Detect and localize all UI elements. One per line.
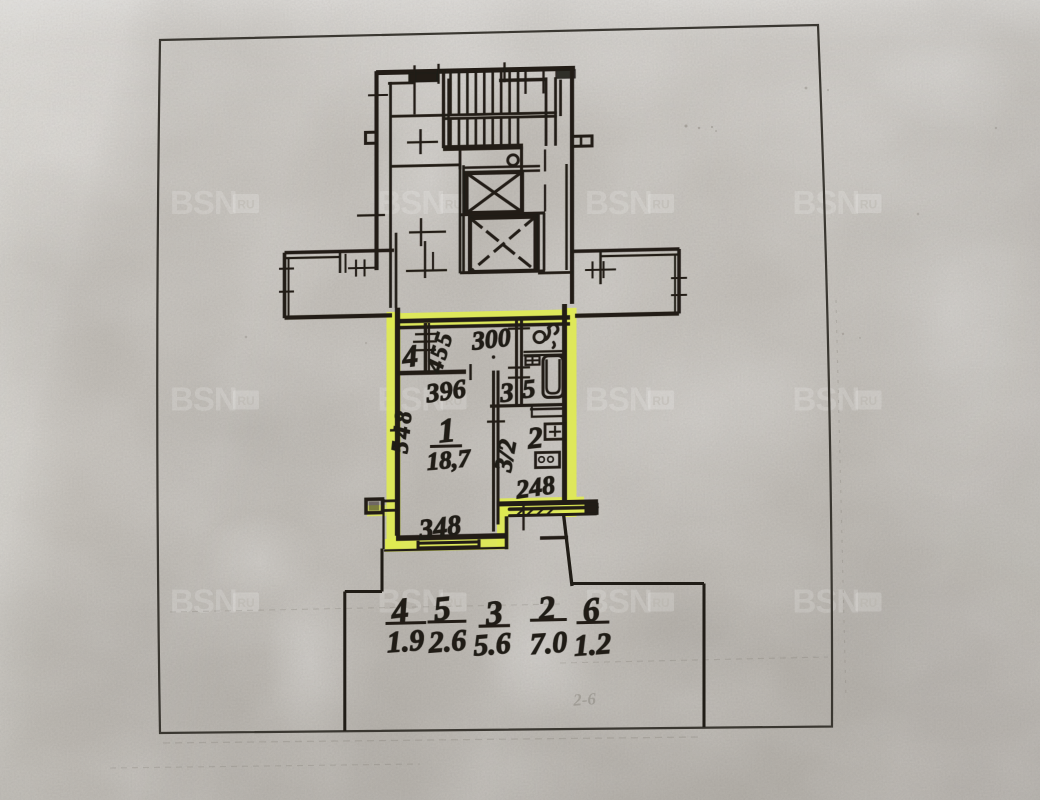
- svg-text:18,7: 18,7: [426, 445, 473, 476]
- svg-text:RU: RU: [652, 198, 669, 212]
- svg-text:5: 5: [521, 374, 536, 404]
- svg-text:248: 248: [513, 470, 556, 504]
- svg-text:2.6: 2.6: [427, 624, 467, 660]
- svg-text:RU: RU: [860, 394, 877, 408]
- svg-text:BSN: BSN: [585, 184, 652, 221]
- svg-text:RU: RU: [237, 596, 254, 610]
- svg-text:BSN: BSN: [793, 381, 860, 418]
- svg-text:RU: RU: [237, 394, 254, 408]
- svg-text:BSN: BSN: [585, 381, 652, 418]
- svg-text:548: 548: [387, 407, 418, 454]
- svg-text:2: 2: [525, 421, 544, 456]
- svg-text:BSN: BSN: [378, 184, 445, 221]
- svg-text:RU: RU: [652, 596, 669, 610]
- svg-text:BSN: BSN: [170, 583, 237, 620]
- svg-text:RU: RU: [237, 198, 254, 212]
- svg-text:3: 3: [498, 377, 515, 408]
- svg-text:BSN: BSN: [170, 184, 237, 221]
- svg-text:7.0: 7.0: [529, 626, 568, 662]
- svg-text:2-6: 2-6: [572, 689, 597, 710]
- svg-text:348: 348: [417, 510, 463, 546]
- svg-text:396: 396: [423, 373, 468, 409]
- svg-text:300: 300: [470, 323, 512, 356]
- svg-text:RU: RU: [652, 394, 669, 408]
- svg-text:3/2: 3/2: [490, 438, 522, 475]
- svg-text:BSN: BSN: [170, 381, 237, 418]
- svg-text:BSN: BSN: [793, 184, 860, 221]
- svg-text:1.9: 1.9: [386, 624, 425, 660]
- svg-text:BSN: BSN: [793, 583, 860, 620]
- svg-text:1.2: 1.2: [573, 627, 612, 663]
- svg-text:RU: RU: [860, 596, 877, 610]
- svg-text:RU: RU: [860, 198, 877, 212]
- svg-text:5.6: 5.6: [472, 627, 511, 663]
